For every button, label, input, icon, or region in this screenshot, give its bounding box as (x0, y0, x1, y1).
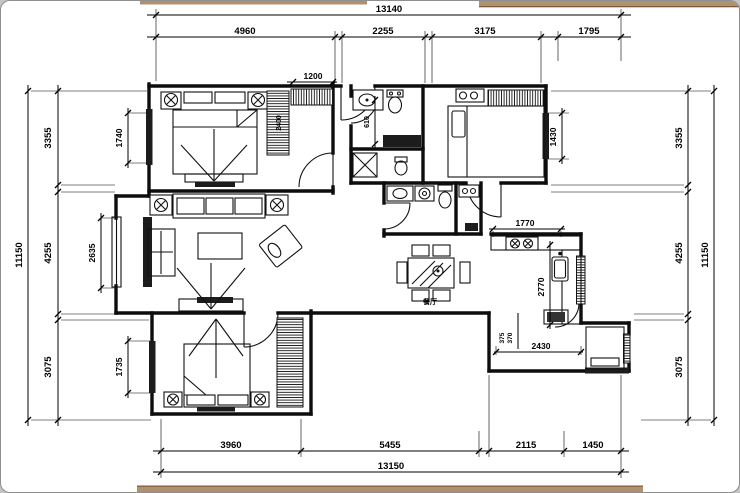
bathroom2-fixtures (387, 185, 479, 231)
svg-text:2635: 2635 (87, 243, 97, 262)
dim-top-seg4: 1795 (578, 26, 600, 37)
svg-text:2400: 2400 (276, 115, 283, 131)
bed-icon (184, 319, 250, 412)
bedroom2-furniture (448, 89, 544, 177)
dim-bottom-overall: 13150 (378, 461, 404, 472)
closet-icon (291, 89, 333, 105)
window-bar (146, 109, 153, 165)
cabinet-icon (459, 185, 479, 197)
sink-icon (387, 186, 413, 201)
dim-bedroom1-closet: 1200 (287, 71, 337, 85)
svg-text:610: 610 (364, 116, 371, 128)
window-bar (585, 368, 629, 374)
dim-bottom-seg4: 1450 (582, 440, 603, 451)
dim-right-seg3: 3075 (674, 356, 685, 378)
dim-left-seg1: 3355 (43, 127, 54, 149)
dim-bedroom1-wardrobe: 2400 (276, 115, 283, 131)
window-bar (112, 217, 152, 287)
dim-right-overall: 11150 (700, 242, 711, 267)
shower-icon (353, 153, 377, 177)
door-arc (244, 313, 278, 347)
dining-table-icon (408, 258, 454, 288)
dim-left-seg3: 3075 (43, 356, 54, 378)
chair-icon (433, 245, 450, 256)
armchair-icon (148, 229, 175, 276)
dim-bedroom3-window: 1735 (114, 336, 150, 398)
coffee-table-icon (198, 233, 242, 259)
balcony-fixtures (586, 327, 624, 369)
sink-icon (552, 252, 568, 281)
washing-machine-icon (415, 186, 434, 201)
dim-top-overall: 13140 (376, 4, 402, 15)
door-arc (299, 153, 333, 187)
door-arc (384, 203, 410, 229)
headboard-shelf (215, 92, 245, 103)
living-furniture (148, 194, 303, 311)
dining-set: 餐厅 (397, 245, 470, 306)
window-bar (149, 341, 156, 393)
dim-bottom-seg1: 3960 (220, 440, 241, 451)
windows (112, 109, 630, 393)
tv-icon (177, 263, 245, 311)
counter-icon (383, 135, 421, 147)
dim-chain-right: 3355 4255 3075 11150 (551, 85, 717, 426)
svg-text:375: 375 (499, 332, 506, 343)
svg-text:2430: 2430 (532, 341, 551, 351)
chair-icon (460, 262, 470, 283)
dim-left-seg2: 4255 (43, 242, 54, 264)
toilet-icon (438, 185, 452, 208)
dim-bedroom1-window: 1740 (114, 108, 147, 168)
fixture (465, 223, 478, 231)
cabinet-icon (591, 358, 619, 366)
svg-text:1735: 1735 (114, 357, 124, 376)
bed-icon (173, 110, 257, 187)
dim-right-seg1: 3355 (674, 127, 685, 149)
wardrobe-icon (488, 90, 544, 106)
sink-icon (353, 90, 383, 110)
dim-top-seg3: 3175 (474, 26, 496, 37)
chair-icon (412, 245, 429, 256)
dim-balcony-offsets: 375 370 (499, 332, 514, 343)
wardrobe-icon (277, 318, 303, 407)
dim-top-seg2: 2255 (372, 26, 394, 37)
bathroom1-fixtures (353, 90, 421, 177)
chair-icon (397, 262, 407, 283)
drawing-page: 13140 4960 2255 3175 1795 3960 5455 2115… (0, 0, 740, 493)
floor-plan-canvas: 13140 4960 2255 3175 1795 3960 5455 2115… (1, 1, 739, 492)
dim-left-overall: 11150 (14, 242, 25, 267)
stove-icon (506, 237, 538, 250)
svg-text:1740: 1740 (114, 128, 124, 147)
toilet-icon (395, 157, 407, 175)
dim-chain-bottom: 3960 5455 2115 1450 13150 (153, 375, 629, 478)
dim-top-seg1: 4960 (234, 26, 255, 37)
dim-bedroom2-window: 1430 (548, 108, 569, 164)
svg-text:2770: 2770 (536, 277, 546, 296)
headboard-shelf (184, 92, 212, 103)
svg-text:1770: 1770 (516, 218, 535, 228)
dim-bottom-seg3: 2115 (516, 440, 537, 451)
sofa-icon (173, 194, 265, 218)
dim-chain-left: 3355 4255 3075 11150 (14, 85, 151, 426)
svg-text:1430: 1430 (548, 127, 558, 146)
appliance-icon (544, 310, 568, 324)
dim-right-seg2: 4255 (674, 242, 685, 264)
dim-chain-top: 13140 4960 2255 3175 1795 (147, 4, 631, 83)
cabinet-icon (586, 327, 624, 369)
bedroom1-furniture (161, 89, 333, 187)
svg-text:1200: 1200 (304, 71, 323, 81)
bedroom3-furniture (164, 318, 303, 412)
dim-living-window: 2635 (87, 213, 114, 293)
bed-icon (448, 106, 544, 177)
svg-text:370: 370 (507, 332, 514, 343)
toilet-icon (387, 90, 403, 113)
dining-room-label: 餐厅 (422, 297, 437, 306)
accent-chair-icon (259, 225, 303, 268)
dim-bottom-seg2: 5455 (379, 440, 401, 451)
